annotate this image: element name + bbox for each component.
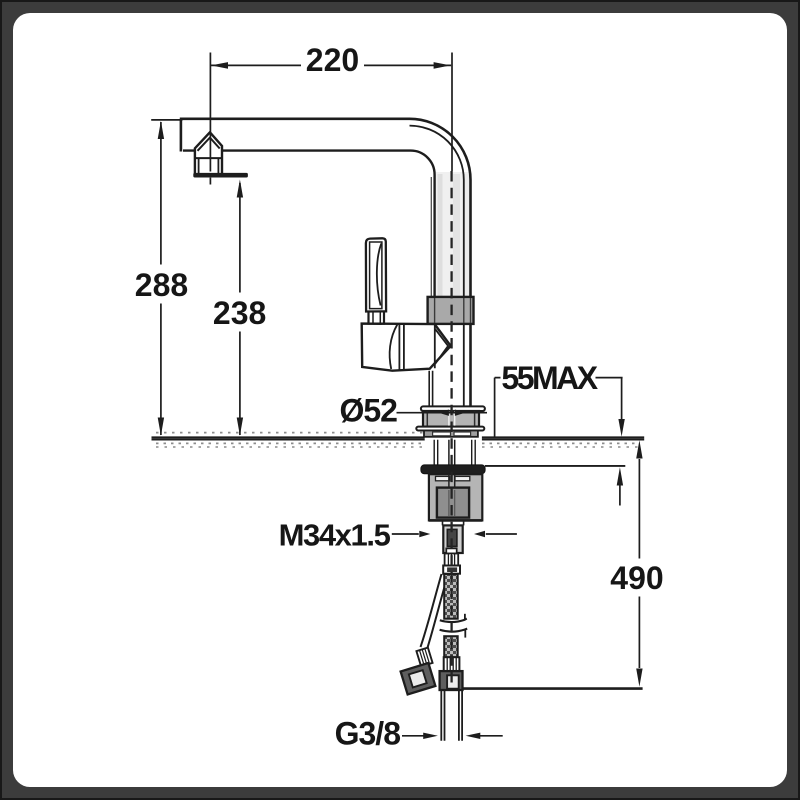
svg-text:G3/8: G3/8 [335,716,401,752]
svg-text:55MAX: 55MAX [501,360,598,396]
svg-text:Ø52: Ø52 [339,393,397,429]
svg-text:220: 220 [306,42,359,78]
svg-text:288: 288 [135,267,188,303]
svg-text:490: 490 [610,560,663,596]
svg-text:238: 238 [213,295,266,331]
svg-text:M34x1.5: M34x1.5 [279,518,391,553]
